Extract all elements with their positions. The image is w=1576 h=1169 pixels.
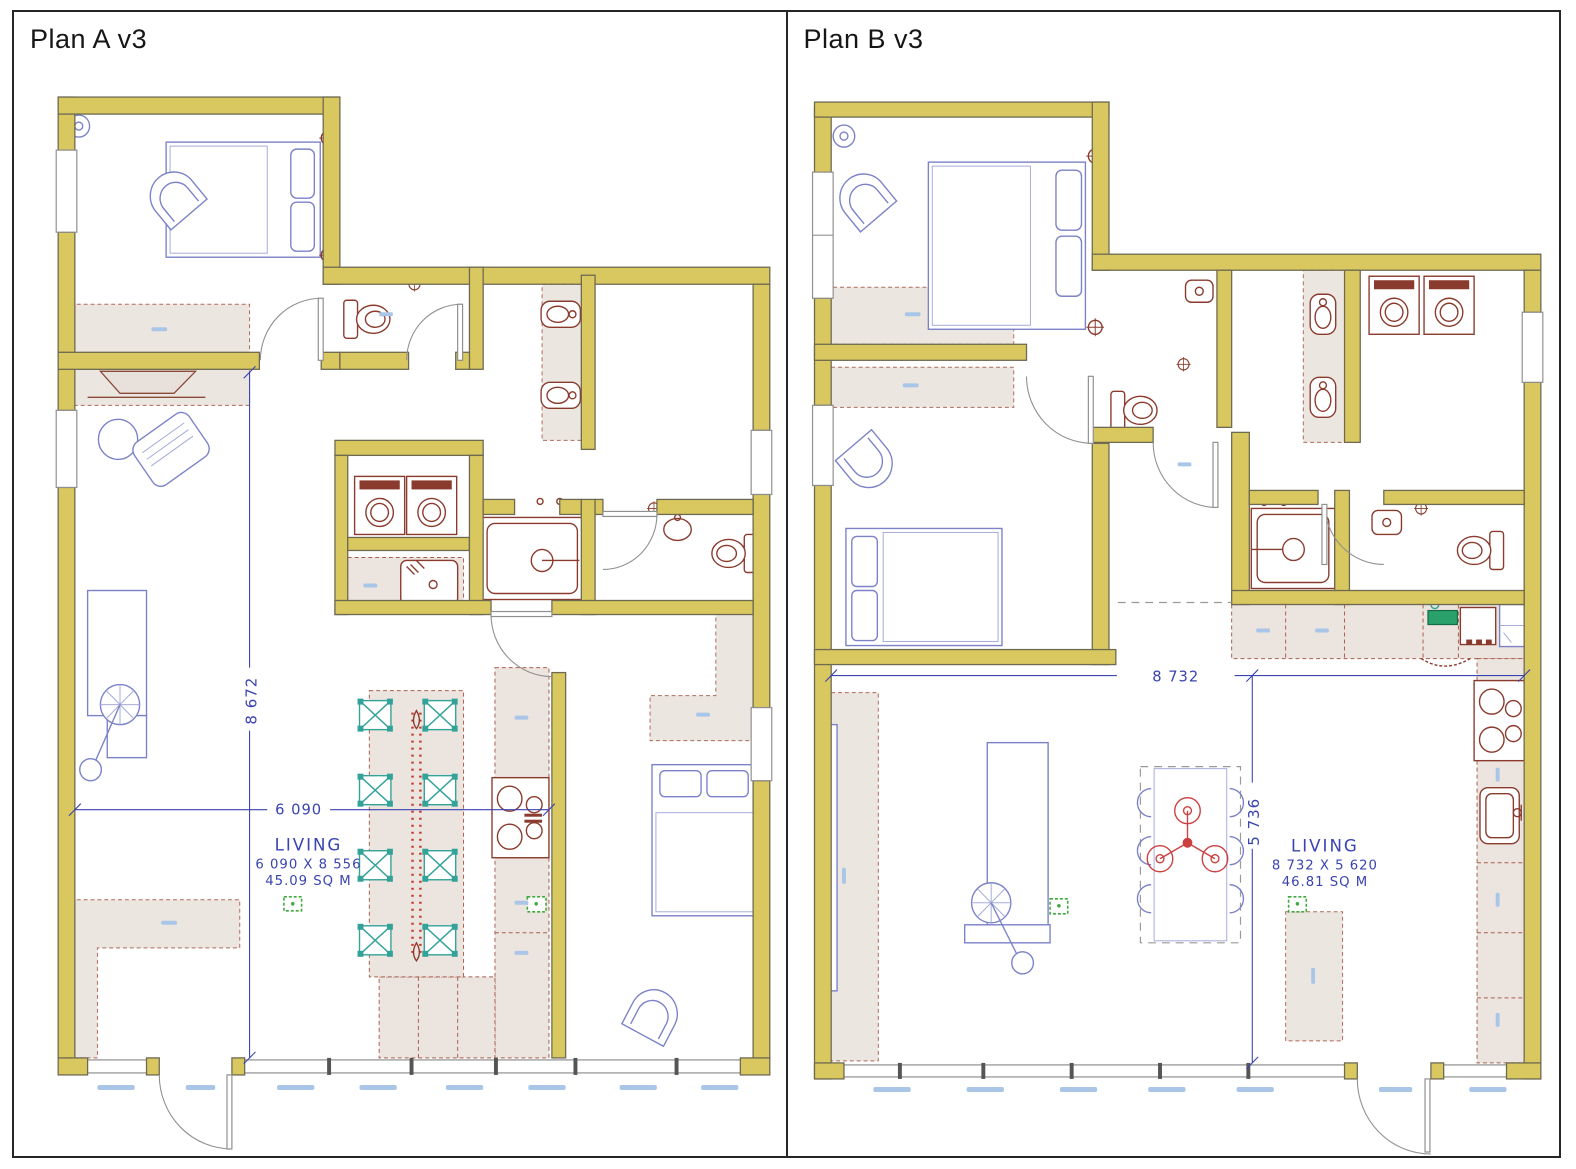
toilet-icon [1110,391,1156,429]
plan-a-height-dim: 8 672 [243,677,261,725]
toilet-icon [712,534,758,572]
wall-sconce-icon [1086,318,1104,336]
round-table-icon [98,419,137,459]
window [56,410,77,487]
window [1522,312,1543,382]
window [751,430,772,494]
kitchen-sink-icon [1479,788,1520,844]
plan-a-title: Plan A v3 [30,24,147,55]
sensor-icon [284,897,302,911]
window [812,405,833,485]
plan-b-title: Plan B v3 [804,24,924,55]
wall-sconce-icon [1176,357,1190,371]
bedroom-chair-icon [830,164,896,232]
plan-b-doors [1026,376,1430,1154]
window [751,708,772,781]
vanity-sink-icon [541,301,580,327]
toilet-icon [1457,531,1503,569]
desk-icon [80,591,147,781]
dryer-icon [407,476,457,534]
plan-b-panel: Plan B v3 [788,12,1560,1156]
corner-sink-icon [1185,280,1212,302]
vanity-sink-icon [541,382,580,408]
stove-icon [1474,681,1524,761]
plan-b-height-dim: 5 736 [1245,798,1263,846]
small-appliance-icon [1460,608,1495,645]
kitchen-counter-return [379,977,495,1058]
plan-a-panel: Plan A v3 [14,12,788,1156]
bedroom2-bed-icon [845,528,1001,645]
bedroom2-rug [650,608,753,741]
plan-b-living-area: 46.81 SQ M [1281,875,1367,890]
vanity-sink-icon [1310,294,1336,334]
sensor-icon [527,897,546,912]
refrigerator-icon [1499,605,1524,647]
vanity-sink-icon [1310,377,1336,417]
stove-icon [492,778,549,858]
plan-b-living-room-label: LIVING [1291,836,1359,856]
ceiling-light-icon [833,125,855,147]
plan-b-annotations [841,312,1506,1092]
bedroom2-chair-icon [835,430,901,498]
dining-area [358,691,464,977]
washer-icon [355,476,405,534]
desk-icon [964,743,1049,974]
plan-a-living-area: 45.09 SQ M [265,874,351,889]
sensor-icon [1288,897,1306,912]
plan-b-width-dim: 8 732 [1152,667,1199,685]
bath-sink-icon [1372,510,1401,534]
toilet-icon [344,300,390,338]
plan-b-floorplan: 8 732 5 736 LIVING 8 732 X 5 620 46.81 S… [788,12,1560,1156]
plan-a-width-dim: 6 090 [275,801,322,819]
bath-sink-icon [664,514,691,540]
closet-sink-icon [401,560,458,604]
washer-icon [1369,276,1419,334]
comparison-frame: Plan A v3 [12,10,1561,1158]
plan-a-floorplan: 6 090 8 672 LIVING 6 090 X 8 556 45.09 S… [14,12,786,1156]
master-bed-icon [928,162,1085,329]
window [56,150,77,232]
plan-a-living-room-label: LIVING [275,835,343,855]
bedroom2-chair-icon [622,981,686,1046]
living-rug [63,900,240,1058]
kitchen-counter [495,668,549,1058]
bedroom2-bed-icon [652,765,760,916]
sensor-icon [1050,899,1068,914]
armchair-icon [129,409,213,491]
dryer-icon [1424,276,1474,334]
plan-b-living-dims: 8 732 X 5 620 [1271,859,1377,874]
plan-a-living-dims: 6 090 X 8 556 [255,858,361,873]
